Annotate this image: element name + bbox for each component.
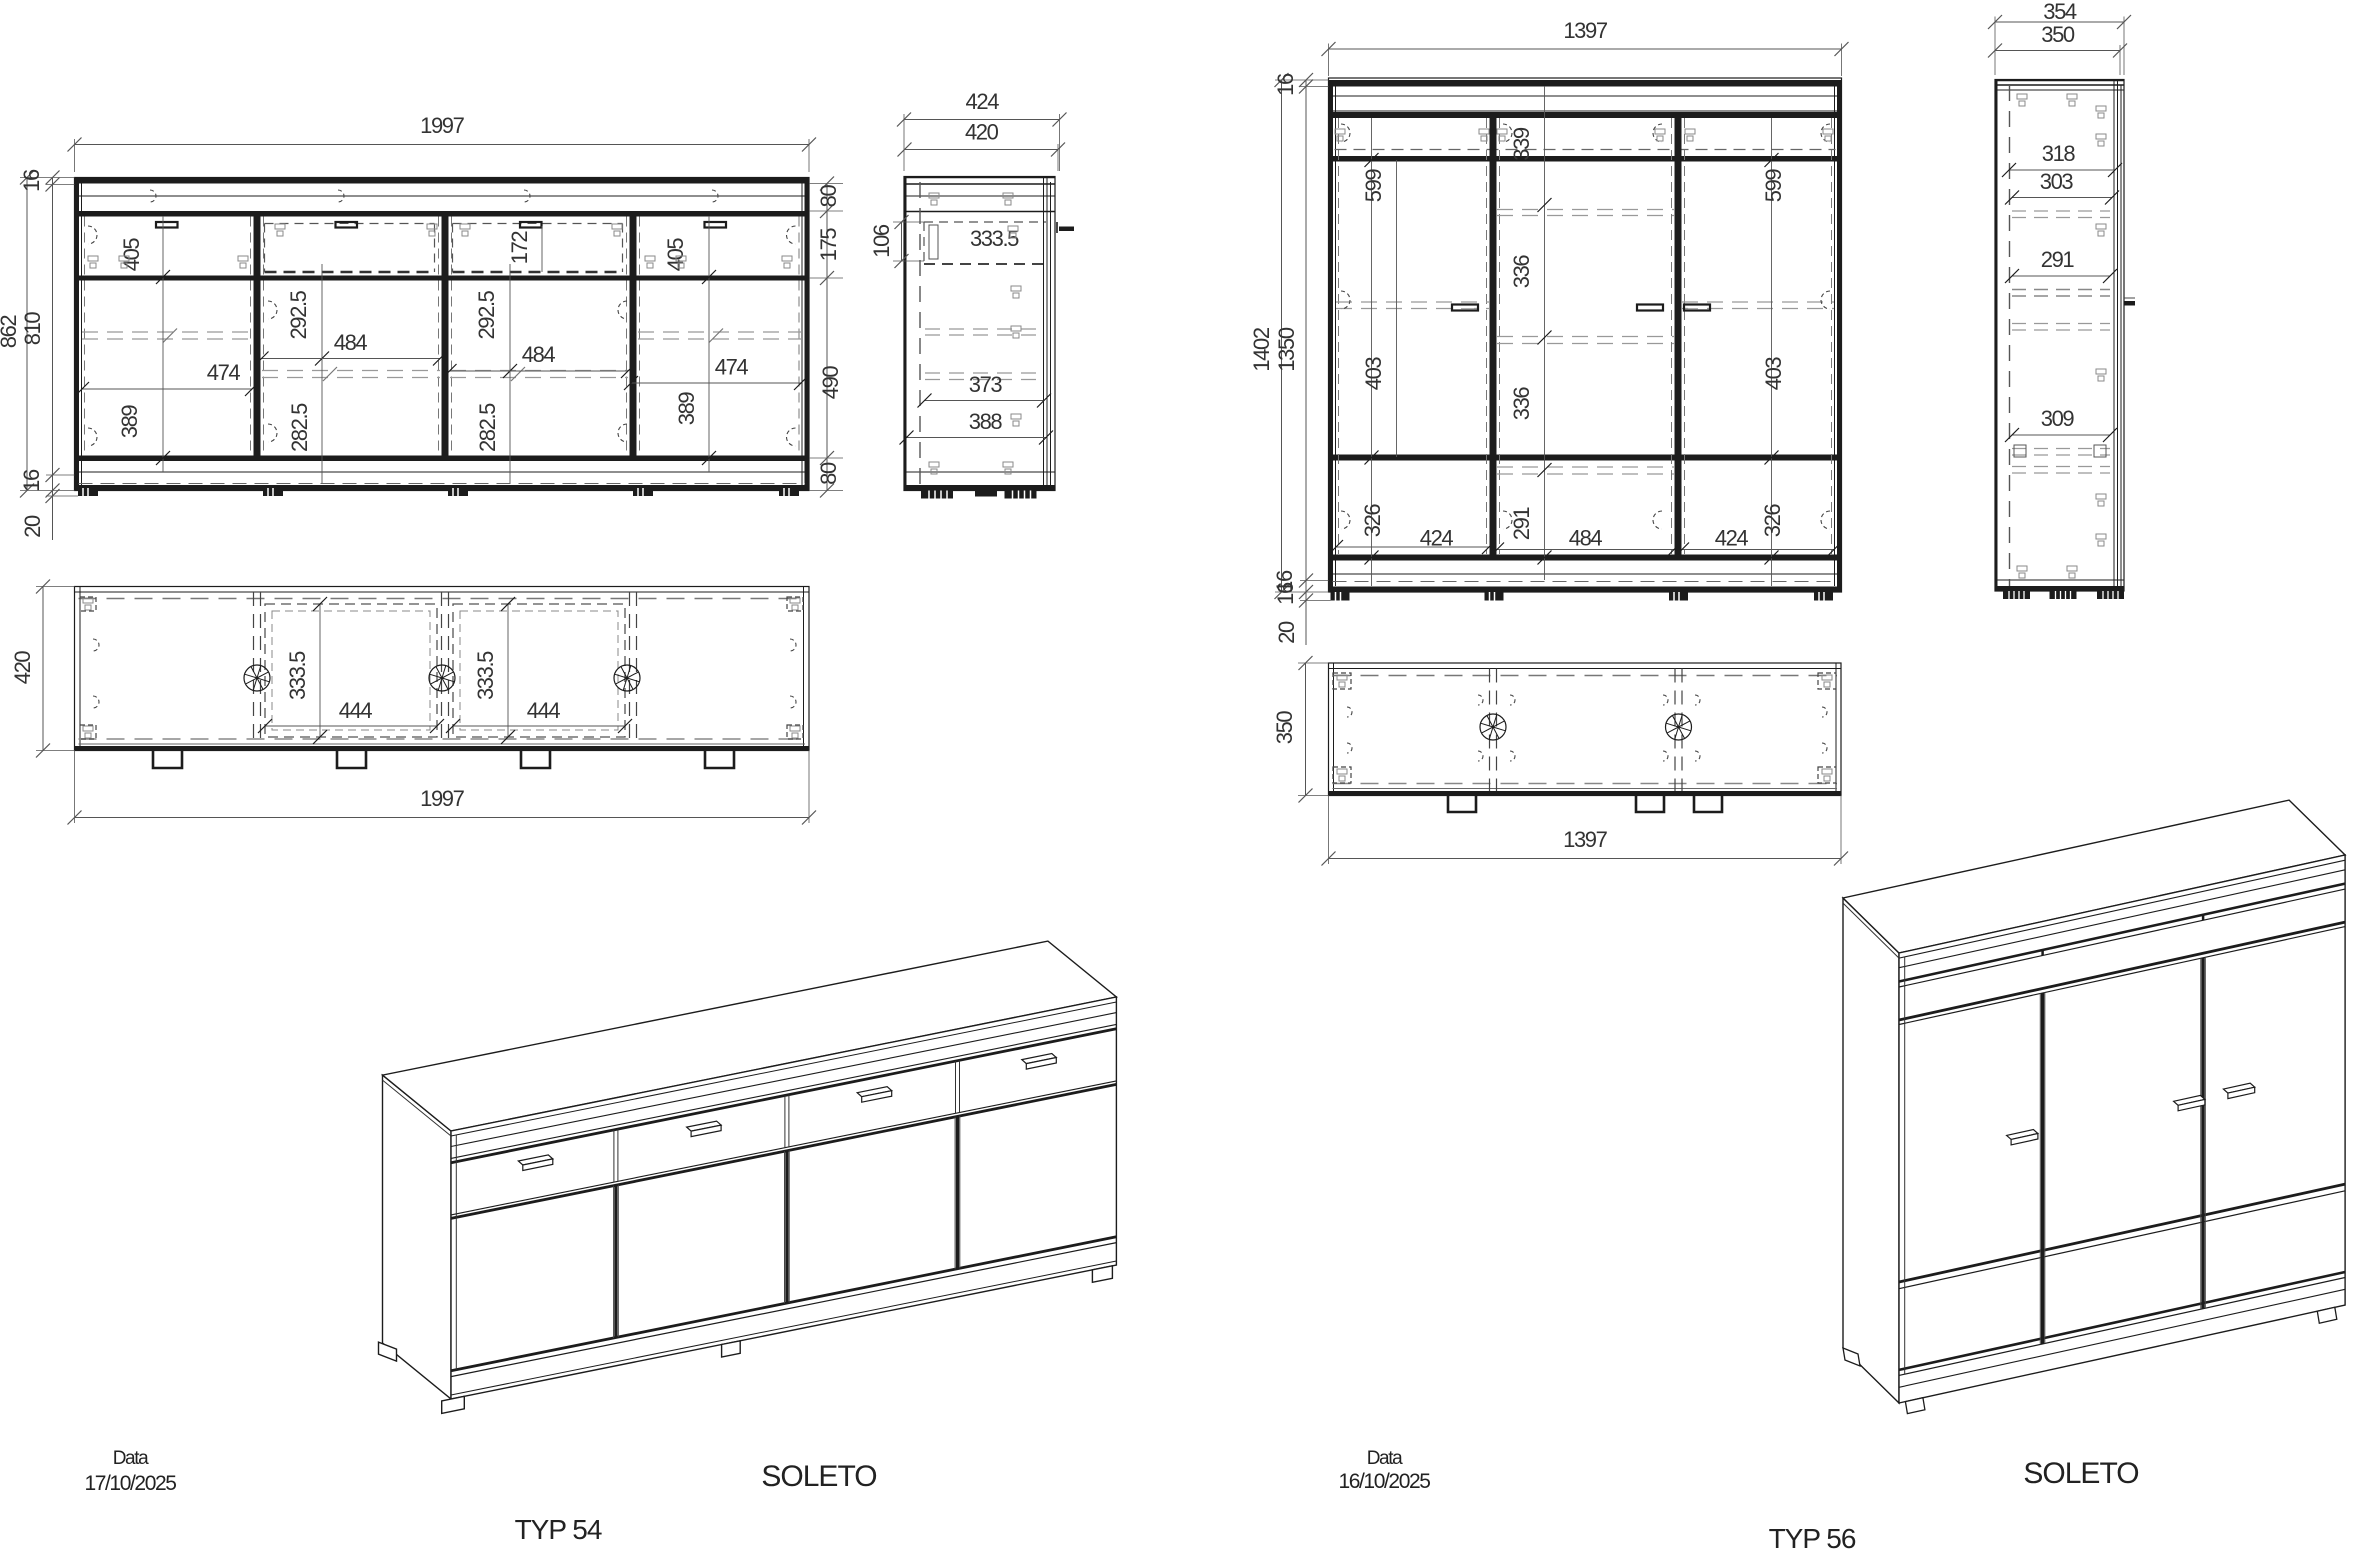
svg-text:292.5: 292.5	[474, 290, 499, 339]
svg-text:291: 291	[2041, 247, 2075, 272]
svg-text:282.5: 282.5	[287, 403, 312, 452]
svg-text:16/10/2025: 16/10/2025	[1338, 1470, 1430, 1493]
svg-text:20: 20	[1274, 621, 1299, 644]
svg-text:420: 420	[965, 120, 999, 145]
svg-text:424: 424	[1715, 526, 1749, 551]
svg-text:TYP 56: TYP 56	[1769, 1523, 1856, 1552]
svg-text:Data: Data	[113, 1448, 149, 1469]
svg-text:175: 175	[816, 228, 841, 262]
svg-text:333.5: 333.5	[285, 651, 310, 700]
svg-text:420: 420	[10, 651, 35, 685]
svg-text:373: 373	[969, 372, 1003, 397]
svg-text:336: 336	[1509, 387, 1534, 421]
svg-text:TYP 54: TYP 54	[515, 1514, 602, 1545]
svg-text:1997: 1997	[420, 113, 465, 138]
svg-text:389: 389	[117, 405, 142, 439]
svg-text:291: 291	[1509, 507, 1534, 541]
svg-text:354: 354	[2043, 0, 2077, 24]
svg-text:474: 474	[207, 360, 241, 385]
svg-text:326: 326	[1360, 504, 1385, 538]
svg-text:309: 309	[2041, 406, 2075, 431]
svg-text:16: 16	[19, 169, 44, 192]
svg-text:403: 403	[1361, 357, 1386, 391]
svg-text:484: 484	[1569, 526, 1603, 551]
svg-text:106: 106	[869, 224, 894, 258]
svg-text:292.5: 292.5	[286, 290, 311, 339]
svg-text:17/10/2025: 17/10/2025	[84, 1472, 176, 1495]
svg-text:1402: 1402	[1249, 327, 1274, 372]
svg-text:350: 350	[1272, 711, 1297, 745]
svg-text:80: 80	[816, 462, 841, 485]
svg-text:326: 326	[1760, 504, 1785, 538]
svg-text:862: 862	[0, 315, 21, 349]
svg-text:424: 424	[966, 89, 1000, 114]
svg-text:389: 389	[674, 392, 699, 426]
svg-text:444: 444	[339, 698, 373, 723]
svg-text:1397: 1397	[1563, 18, 1608, 43]
svg-text:444: 444	[527, 698, 561, 723]
svg-text:1350: 1350	[1274, 327, 1299, 372]
svg-text:1997: 1997	[420, 786, 465, 811]
svg-text:350: 350	[2041, 22, 2075, 47]
svg-text:599: 599	[1761, 169, 1786, 203]
svg-text:172: 172	[507, 231, 532, 265]
svg-text:599: 599	[1361, 169, 1386, 203]
svg-text:282.5: 282.5	[475, 403, 500, 452]
svg-text:20: 20	[20, 515, 45, 538]
svg-text:388: 388	[969, 409, 1003, 434]
svg-text:339: 339	[1509, 127, 1534, 161]
svg-text:484: 484	[522, 342, 556, 367]
svg-text:16: 16	[1273, 73, 1298, 96]
svg-text:403: 403	[1761, 357, 1786, 391]
svg-text:424: 424	[1420, 526, 1454, 551]
svg-text:336: 336	[1509, 255, 1534, 289]
svg-text:16: 16	[1273, 582, 1298, 605]
svg-text:80: 80	[816, 185, 841, 208]
svg-text:16: 16	[19, 469, 44, 492]
svg-text:303: 303	[2040, 169, 2074, 194]
svg-text:1397: 1397	[1563, 827, 1608, 852]
svg-text:SOLETO: SOLETO	[2023, 1457, 2138, 1490]
svg-text:484: 484	[334, 330, 368, 355]
svg-text:405: 405	[119, 238, 144, 272]
svg-text:318: 318	[2042, 141, 2076, 166]
svg-text:474: 474	[715, 355, 749, 380]
svg-text:333.5: 333.5	[473, 651, 498, 700]
svg-text:Data: Data	[1367, 1448, 1403, 1469]
svg-text:SOLETO: SOLETO	[761, 1460, 876, 1493]
svg-text:810: 810	[20, 312, 45, 346]
svg-text:490: 490	[818, 366, 843, 400]
